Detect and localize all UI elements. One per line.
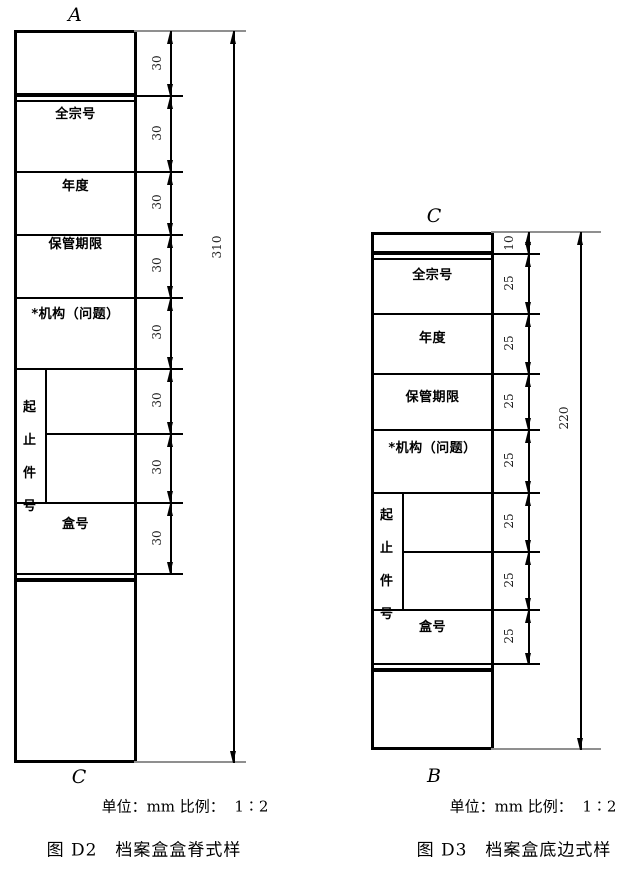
arrow-down-icon (167, 223, 173, 235)
d3-fold-line-bottom-thin (374, 663, 491, 665)
arrow-down-icon (167, 286, 173, 298)
d3-field-start-end-item-no: 起 止 件 号 (371, 504, 402, 622)
d2-unit-scale-note: 单位：mm 比例： 1∶2 (102, 796, 269, 817)
d3-dim-value: 25 (502, 572, 516, 587)
d3-corner-label-c: C (427, 205, 442, 227)
d3-separator (374, 373, 491, 375)
d2-item-no-divider (45, 368, 47, 502)
d2-caption: 图 D2 档案盒盒脊式样 (47, 836, 242, 861)
arrow-up-icon (167, 236, 173, 248)
d2-dim-value: 30 (150, 530, 164, 545)
d3-dim-value: 10 (502, 235, 516, 250)
arrow-up-icon (525, 315, 531, 327)
d3-fold-line-bottom-thick (374, 668, 491, 672)
d2-dim-value: 30 (150, 324, 164, 339)
d2-corner-label-a: A (68, 4, 82, 26)
vertical-char: 起 (23, 396, 36, 415)
arrow-down-icon (525, 362, 531, 374)
arrow-down-icon (525, 598, 531, 610)
arrow-down-icon (525, 481, 531, 493)
d3-dim-ext (494, 551, 540, 553)
d3-field-box-no: 盒号 (371, 620, 494, 636)
vertical-char: 件 (380, 570, 393, 589)
d3-separator (374, 492, 491, 494)
arrow-up-icon (167, 370, 173, 382)
arrow-down-icon (230, 751, 236, 763)
arrow-up-icon (167, 435, 173, 447)
vertical-char: 件 (23, 462, 36, 481)
d2-dim-value: 30 (150, 55, 164, 70)
arrow-up-icon (525, 553, 531, 565)
arrow-up-icon (167, 299, 173, 311)
d3-dim-ext (494, 313, 540, 315)
d3-dim-ext (494, 373, 540, 375)
d2-dim-ext (137, 297, 183, 299)
d3-total-dim-line (580, 232, 582, 750)
d2-field-org-issue: *机构（问题） (14, 307, 137, 323)
d3-dim-value: 25 (502, 452, 516, 467)
d2-field-retention: 保管期限 (14, 237, 137, 253)
d3-fold-line-top-thick (374, 251, 491, 255)
arrow-up-icon (525, 611, 531, 623)
d2-dim-ext (137, 368, 183, 370)
d2-corner-label-c: C (72, 766, 87, 788)
d3-outline-box (371, 232, 494, 750)
d3-dim-ext (494, 253, 540, 255)
d2-field-box-no: 盒号 (14, 517, 137, 533)
d2-fold-line-top-thick (17, 93, 134, 97)
d3-fold-line-top-thin (374, 258, 491, 260)
d2-fold-line-top-thin (17, 100, 134, 102)
d2-dim-ext (137, 234, 183, 236)
d2-dim-value: 30 (150, 257, 164, 272)
arrow-down-icon (167, 84, 173, 96)
d2-separator (17, 368, 134, 370)
vertical-char: 止 (23, 429, 36, 448)
d2-dim-ext (137, 433, 183, 435)
d3-dim-value: 25 (502, 513, 516, 528)
d2-dim-ext (137, 171, 183, 173)
d3-field-fonds-no: 全宗号 (371, 268, 494, 284)
arrow-down-icon (525, 242, 531, 254)
arrow-down-icon (167, 422, 173, 434)
drawing-page: A 全宗号 年度 保管期限 *机构（问题） 盒号 起 止 件 号 30 (0, 0, 618, 871)
vertical-char: 号 (380, 603, 393, 622)
d2-dim-ext (137, 502, 183, 504)
d2-total-dim-value: 310 (210, 236, 224, 259)
vertical-char: 起 (380, 504, 393, 523)
d3-dim-ext (494, 429, 540, 431)
arrow-down-icon (525, 653, 531, 665)
arrow-down-icon (525, 418, 531, 430)
d3-dim-value: 25 (502, 335, 516, 350)
arrow-up-icon (525, 494, 531, 506)
d3-extension-line-top (491, 231, 601, 233)
arrow-up-icon (577, 233, 583, 245)
d3-dim-ext (494, 609, 540, 611)
d3-item-no-middle-line (402, 551, 491, 553)
d2-separator (17, 297, 134, 299)
d3-field-year: 年度 (371, 331, 494, 347)
arrow-up-icon (167, 32, 173, 44)
d3-dim-value: 25 (502, 628, 516, 643)
d2-dim-value: 30 (150, 459, 164, 474)
d3-separator (374, 429, 491, 431)
d2-dim-value: 30 (150, 194, 164, 209)
arrow-down-icon (167, 160, 173, 172)
arrow-down-icon (167, 562, 173, 574)
d2-dim-value: 30 (150, 125, 164, 140)
d2-total-dim-line (233, 31, 235, 763)
arrow-up-icon (167, 504, 173, 516)
d3-dim-value: 25 (502, 393, 516, 408)
d3-total-dim-value: 220 (557, 407, 571, 430)
d3-corner-label-b: B (427, 765, 441, 787)
d2-field-start-end-item-no: 起 止 件 号 (14, 396, 45, 514)
d2-fold-line-bottom-thick (17, 578, 134, 582)
d2-separator (17, 234, 134, 236)
arrow-down-icon (525, 302, 531, 314)
arrow-down-icon (525, 540, 531, 552)
d2-fold-line-bottom-thin (17, 573, 134, 575)
arrow-up-icon (525, 431, 531, 443)
arrow-up-icon (525, 375, 531, 387)
d2-separator (17, 171, 134, 173)
d2-item-no-middle-line (45, 433, 134, 435)
d2-field-fonds-no: 全宗号 (14, 107, 137, 123)
arrow-up-icon (525, 255, 531, 267)
d2-dim-value: 30 (150, 392, 164, 407)
arrow-up-icon (230, 32, 236, 44)
arrow-up-icon (167, 173, 173, 185)
arrow-down-icon (167, 491, 173, 503)
d3-separator (374, 313, 491, 315)
arrow-down-icon (577, 738, 583, 750)
d3-extension-line-bottom (491, 748, 601, 750)
d3-field-retention: 保管期限 (371, 390, 494, 406)
d3-dim-ext (494, 492, 540, 494)
vertical-char: 止 (380, 537, 393, 556)
d2-field-year: 年度 (14, 179, 137, 195)
d3-dim-ext (494, 663, 540, 665)
d2-dim-ext (137, 573, 183, 575)
d2-dim-ext (137, 95, 183, 97)
arrow-down-icon (167, 357, 173, 369)
d3-caption: 图 D3 档案盒底边式样 (417, 836, 612, 861)
arrow-up-icon (167, 97, 173, 109)
d3-dim-value: 25 (502, 275, 516, 290)
d3-unit-scale-note: 单位：mm 比例： 1∶2 (450, 796, 617, 817)
vertical-char: 号 (23, 495, 36, 514)
d3-field-org-issue: *机构（问题） (371, 441, 494, 457)
